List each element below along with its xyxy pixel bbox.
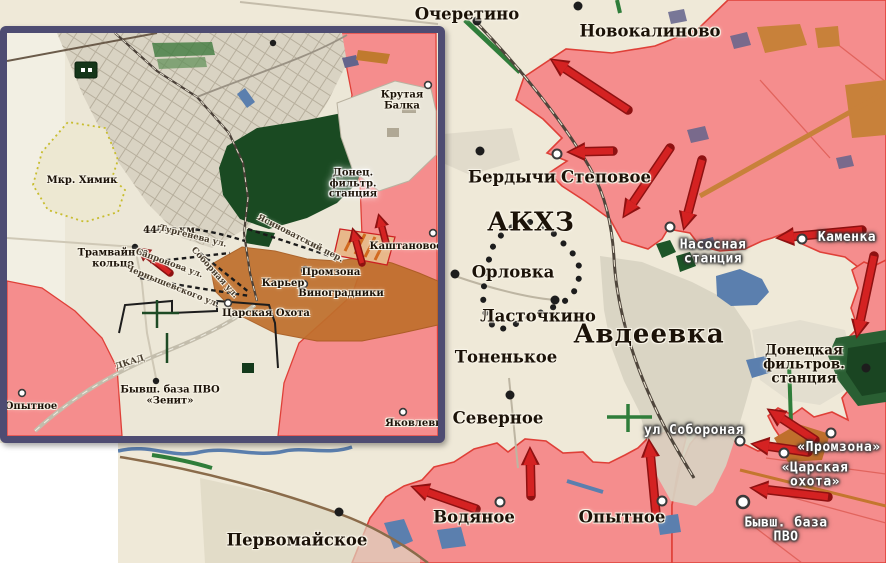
settlement-dot xyxy=(574,2,583,11)
settlement-dot xyxy=(473,17,482,26)
settlement-dot xyxy=(425,82,432,89)
city-inset: Мкр. Химик447-я кмТрамвайное кольцоТурге… xyxy=(0,26,445,443)
settlement-dot xyxy=(302,267,309,274)
settlement-dot xyxy=(862,364,871,373)
settlement-dot xyxy=(496,498,505,507)
settlement-dot xyxy=(553,150,562,159)
settlement-dot xyxy=(225,300,232,307)
settlement-dot xyxy=(476,147,485,156)
settlement-dot xyxy=(153,378,159,384)
settlement-dot xyxy=(658,497,667,506)
settlement-dot xyxy=(400,409,407,416)
settlement-dot xyxy=(430,230,437,237)
inset-map-canvas xyxy=(7,33,438,436)
settlement-dot xyxy=(270,40,276,46)
settlement-dot xyxy=(666,223,675,232)
settlement-dot xyxy=(506,391,515,400)
settlement-dot xyxy=(780,449,789,458)
settlement-dot xyxy=(736,437,745,446)
map-edge-blank xyxy=(0,443,118,563)
settlement-dot xyxy=(144,227,150,233)
settlement-dot xyxy=(19,390,26,397)
settlement-dot xyxy=(551,296,560,305)
settlement-dot xyxy=(737,496,749,508)
war-map: ОчеретиноНовокалиновоБердычиСтеповоеАКХЗ… xyxy=(0,0,886,563)
settlement-dot xyxy=(132,244,138,250)
settlement-dot xyxy=(335,508,344,517)
settlement-dot xyxy=(301,281,308,288)
settlement-dot xyxy=(451,270,460,279)
settlement-dot xyxy=(827,429,836,438)
factory-icon xyxy=(75,62,97,78)
settlement-dot xyxy=(798,235,807,244)
